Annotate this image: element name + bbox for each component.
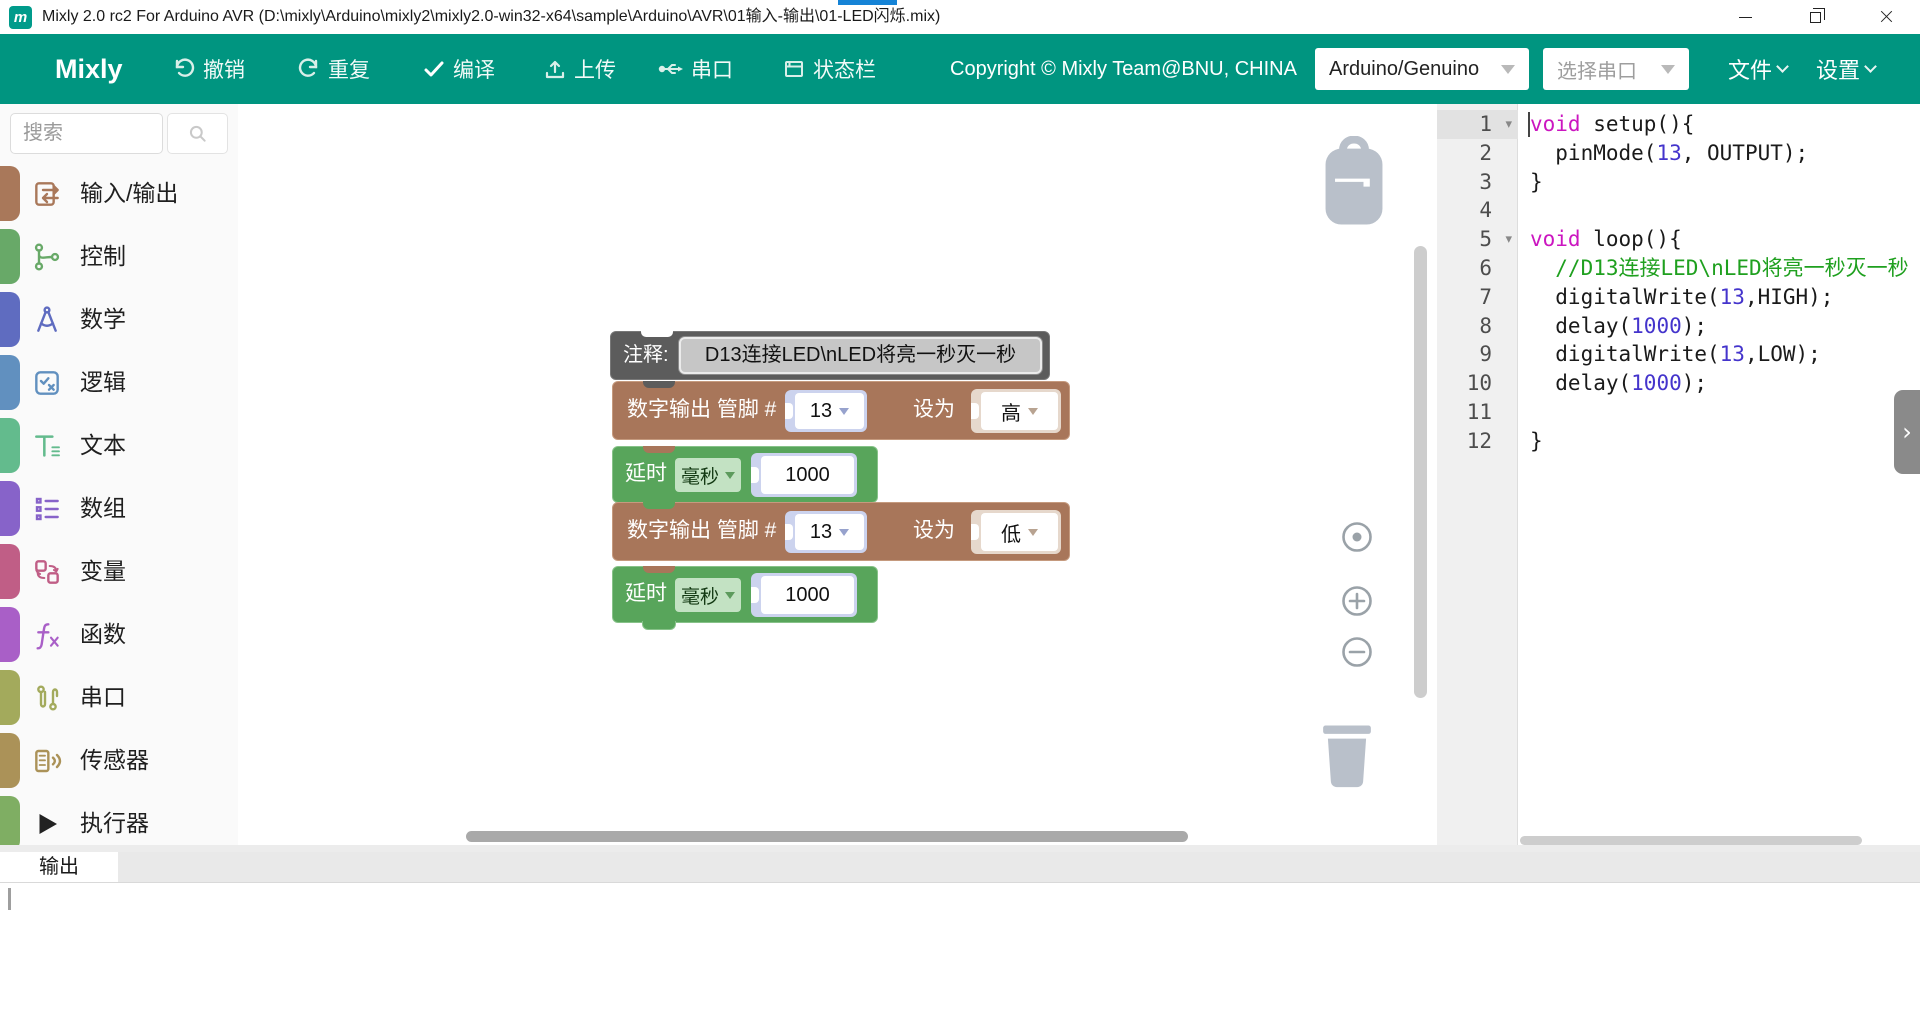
mixly-window: m Mixly 2.0 rc2 For Arduino AVR (D:\mixl… xyxy=(0,0,1920,1032)
category-item-control[interactable]: 控制 xyxy=(0,225,238,288)
comment-text-field[interactable]: D13连接LED\nLED将亮一秒灭一秒 xyxy=(679,337,1042,374)
digital-write-block[interactable]: 数字输出 管脚 # 13 设为 高 xyxy=(612,381,1070,440)
redo-icon xyxy=(297,57,321,81)
canvas-vertical-scrollbar[interactable] xyxy=(1414,246,1427,698)
category-label: 变量 xyxy=(80,540,126,603)
category-label: 文本 xyxy=(80,414,126,477)
category-item-sensor[interactable]: 传感器 xyxy=(0,729,238,792)
output-panel[interactable] xyxy=(0,882,1920,1032)
title-bar: m Mixly 2.0 rc2 For Arduino AVR (D:\mixl… xyxy=(0,0,1920,34)
delay-block[interactable]: 延时 毫秒 1000 xyxy=(612,566,878,623)
code-line: } xyxy=(1530,168,1920,197)
category-color-bar xyxy=(0,481,20,536)
category-item-variable[interactable]: 变量 xyxy=(0,540,238,603)
search-input[interactable] xyxy=(10,113,163,154)
line-number: 10 xyxy=(1437,369,1518,398)
category-label: 逻辑 xyxy=(80,351,126,414)
delay-block[interactable]: 延时 毫秒 1000 xyxy=(612,446,878,503)
delay-value-field[interactable]: 1000 xyxy=(751,573,857,617)
compile-button[interactable]: 编译 xyxy=(422,34,495,104)
dropdown-arrow-icon xyxy=(839,529,849,536)
function-icon xyxy=(30,618,64,652)
settings-menu[interactable]: 设置 xyxy=(1816,34,1875,104)
category-label: 控制 xyxy=(80,225,126,288)
code-line xyxy=(1530,398,1920,427)
category-color-bar xyxy=(0,292,20,347)
backpack-icon[interactable] xyxy=(1316,136,1392,239)
board-select[interactable]: Arduino/Genuino xyxy=(1315,48,1529,90)
variable-icon xyxy=(30,555,64,589)
upload-button[interactable]: 上传 xyxy=(543,34,616,104)
code-line: pinMode(13, OUTPUT); xyxy=(1530,139,1920,168)
copyright-text: Copyright © Mixly Team@BNU, CHINA xyxy=(950,34,1297,104)
block-category-sidebar: 输入/输出 控制 数学 逻辑 文本 数组 变量 函 xyxy=(0,104,238,845)
text-cursor xyxy=(1528,112,1530,137)
code-line: //D13连接LED\nLED将亮一秒灭一秒 xyxy=(1530,254,1920,283)
sensor-icon xyxy=(30,744,64,778)
bottom-tab-bar: 输出 xyxy=(0,852,1920,882)
trash-icon[interactable] xyxy=(1318,716,1376,795)
app-logo-icon: m xyxy=(9,6,32,29)
line-number: 1▾ xyxy=(1437,110,1518,139)
category-label: 数学 xyxy=(80,288,126,351)
tab-output[interactable]: 输出 xyxy=(0,852,118,882)
category-item-serial[interactable]: 串口 xyxy=(0,666,238,729)
line-number: 4 xyxy=(1437,196,1518,225)
search-icon xyxy=(188,124,208,144)
redo-button[interactable]: 重复 xyxy=(297,34,370,104)
category-color-bar xyxy=(0,418,20,473)
category-item-text[interactable]: 文本 xyxy=(0,414,238,477)
statusbar-button[interactable]: 状态栏 xyxy=(782,34,876,104)
minimize-icon xyxy=(1739,17,1752,18)
statusbar-icon xyxy=(782,57,806,81)
logic-icon xyxy=(30,366,64,400)
category-color-bar xyxy=(0,229,20,284)
unit-dropdown[interactable]: 毫秒 xyxy=(675,458,741,492)
line-number: 7 xyxy=(1437,283,1518,312)
line-number: 12 xyxy=(1437,427,1518,456)
code-line: digitalWrite(13,HIGH); xyxy=(1530,283,1920,312)
io-icon xyxy=(30,177,64,211)
canvas-horizontal-scrollbar[interactable] xyxy=(466,831,1188,842)
control-icon xyxy=(30,240,64,274)
top-blue-strip xyxy=(838,0,897,5)
minimize-button[interactable] xyxy=(1716,0,1774,34)
category-color-bar xyxy=(0,796,20,851)
chevron-down-icon xyxy=(1661,65,1675,74)
category-color-bar xyxy=(0,355,20,410)
file-menu[interactable]: 文件 xyxy=(1728,34,1787,104)
pin-dropdown[interactable]: 13 xyxy=(785,511,867,553)
dropdown-arrow-icon xyxy=(839,408,849,415)
close-icon xyxy=(1880,11,1893,24)
category-label: 输入/输出 xyxy=(80,162,178,225)
zoom-reset-button[interactable] xyxy=(1338,518,1376,556)
category-item-io[interactable]: 输入/输出 xyxy=(0,162,238,225)
code-line: digitalWrite(13,LOW); xyxy=(1530,340,1920,369)
chevron-right-icon: › xyxy=(1902,418,1912,446)
category-list: 输入/输出 控制 数学 逻辑 文本 数组 变量 函 xyxy=(0,162,238,855)
fold-arrow-icon[interactable]: ▾ xyxy=(1505,111,1512,140)
category-item-logic[interactable]: 逻辑 xyxy=(0,351,238,414)
main-toolbar: Mixly 撤销 重复 编译 上传 串口 状态栏 Copyright © Mix… xyxy=(0,34,1920,104)
line-number: 5▾ xyxy=(1437,225,1518,254)
category-color-bar xyxy=(0,607,20,662)
panel-collapse-button[interactable]: › xyxy=(1894,390,1920,474)
array-icon xyxy=(30,492,64,526)
text-icon xyxy=(30,429,64,463)
dropdown-arrow-icon xyxy=(1028,529,1038,536)
category-color-bar xyxy=(0,733,20,788)
restore-button[interactable] xyxy=(1786,0,1844,34)
search-button[interactable] xyxy=(167,113,228,154)
delay-value-field[interactable]: 1000 xyxy=(751,453,857,497)
dropdown-arrow-icon xyxy=(1028,408,1038,415)
line-number: 9 xyxy=(1437,340,1518,369)
pin-dropdown[interactable]: 13 xyxy=(785,390,867,432)
actuator-icon xyxy=(30,807,64,841)
code-line: delay(1000); xyxy=(1530,312,1920,341)
window-title: Mixly 2.0 rc2 For Arduino AVR (D:\mixly\… xyxy=(42,0,940,34)
category-color-bar xyxy=(0,544,20,599)
level-dropdown[interactable]: 低 xyxy=(971,510,1061,554)
category-label: 函数 xyxy=(80,603,126,666)
level-dropdown[interactable]: 高 xyxy=(971,389,1061,433)
code-line: delay(1000); xyxy=(1530,369,1920,398)
close-button[interactable] xyxy=(1857,0,1915,34)
line-number: 6 xyxy=(1437,254,1518,283)
category-item-function[interactable]: 函数 xyxy=(0,603,238,666)
port-select[interactable]: 选择串口 xyxy=(1543,48,1689,90)
fold-arrow-icon[interactable]: ▾ xyxy=(1505,226,1512,255)
code-line: } xyxy=(1530,427,1920,456)
serial-monitor-button[interactable]: 串口 xyxy=(658,34,733,104)
line-number: 3 xyxy=(1437,168,1518,197)
undo-icon xyxy=(172,57,196,81)
line-number: 11 xyxy=(1437,398,1518,427)
chevron-down-icon xyxy=(1501,65,1515,74)
code-line: void loop(){ xyxy=(1530,225,1920,254)
category-item-math[interactable]: 数学 xyxy=(0,288,238,351)
unit-dropdown[interactable]: 毫秒 xyxy=(675,578,741,612)
upload-icon xyxy=(543,57,567,81)
line-number: 2 xyxy=(1437,139,1518,168)
dropdown-arrow-icon xyxy=(725,472,735,479)
category-color-bar xyxy=(0,670,20,725)
digital-write-block[interactable]: 数字输出 管脚 # 13 设为 低 xyxy=(612,502,1070,561)
code-horizontal-scrollbar[interactable] xyxy=(1520,836,1862,845)
comment-block[interactable]: 注释: D13连接LED\nLED将亮一秒灭一秒 xyxy=(610,331,1050,380)
output-scrollbar xyxy=(8,888,11,910)
bottom-divider xyxy=(0,845,1920,852)
serial-icon xyxy=(30,681,64,715)
undo-button[interactable]: 撤销 xyxy=(172,34,245,104)
code-line: void setup(){ xyxy=(1530,110,1920,139)
dropdown-arrow-icon xyxy=(725,592,735,599)
category-item-array[interactable]: 数组 xyxy=(0,477,238,540)
zoom-in-button[interactable] xyxy=(1338,582,1376,620)
check-icon xyxy=(422,57,446,81)
restore-icon xyxy=(1810,12,1821,23)
category-color-bar xyxy=(0,166,20,221)
category-label: 数组 xyxy=(80,477,126,540)
chevron-down-icon xyxy=(1864,60,1877,73)
code-panel[interactable]: 1▾2345▾6789101112 void setup(){ pinMode(… xyxy=(1435,104,1920,845)
block-bottom-tab xyxy=(642,621,676,630)
usb-serial-icon xyxy=(658,57,684,81)
zoom-out-button[interactable] xyxy=(1338,633,1376,671)
category-label: 传感器 xyxy=(80,729,149,792)
line-number: 8 xyxy=(1437,312,1518,341)
code-line xyxy=(1530,196,1920,225)
category-label: 串口 xyxy=(80,666,126,729)
math-icon xyxy=(30,303,64,337)
brand-label: Mixly xyxy=(55,34,123,104)
chevron-down-icon xyxy=(1776,60,1789,73)
